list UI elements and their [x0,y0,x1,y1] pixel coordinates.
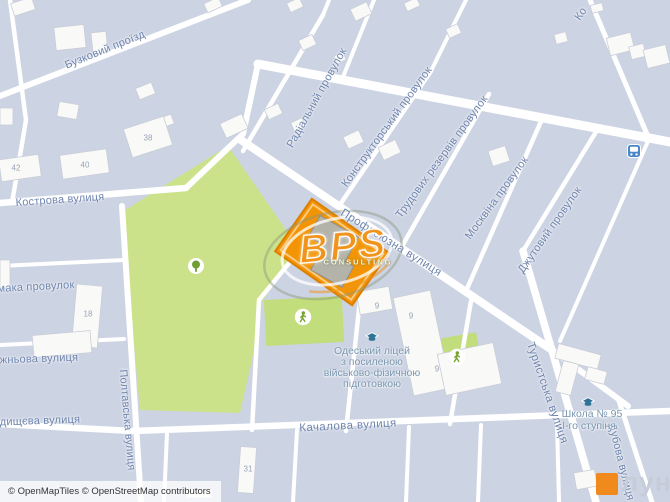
house-number: 9 [409,312,413,321]
pedestrian-icon [295,309,311,325]
map-attribution[interactable]: © OpenMapTiles © OpenStreetMap contribut… [0,481,221,502]
house-number: 31 [244,465,253,474]
school-icon [366,333,378,341]
house-number: 38 [144,134,153,143]
poi-label-school: Школа № 95 [562,408,623,420]
tree-icon [188,258,204,274]
brand-logo-square[interactable] [596,473,618,495]
house-number: 9 [435,365,439,374]
brand-logo-text[interactable]: лун [621,467,670,498]
map-page: { "streets": [ "Бузковий проїзд", "Костр… [0,0,670,502]
poi-label-school: І-го ступіня [562,420,616,432]
pedestrian-icon [449,349,465,365]
school-icon [582,398,594,406]
bus-stop-icon[interactable] [628,145,641,158]
house-number: 42 [12,164,21,173]
poi-label-lyceum: підготовкою [343,378,401,390]
house-number: 9 [375,302,379,311]
house-number: 18 [84,310,93,319]
watermark-logo-subtitle: CONSULTING [323,258,392,267]
house-number: 40 [81,161,90,170]
